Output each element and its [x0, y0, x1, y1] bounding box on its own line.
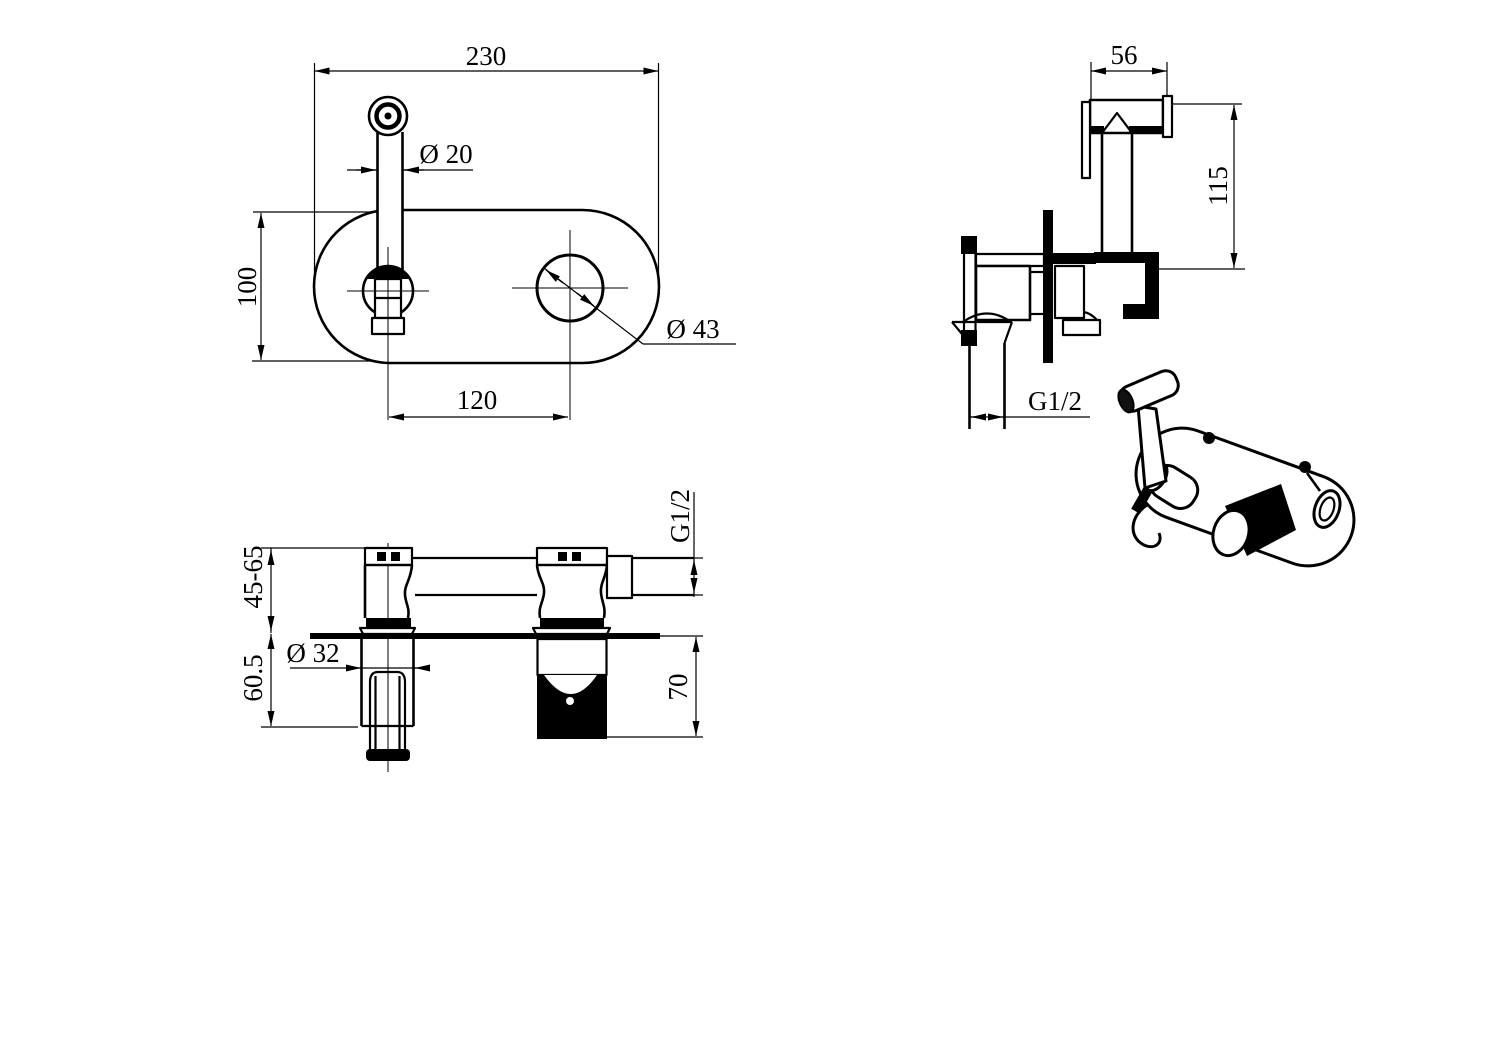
drawing-canvas: 230 100 Ø 43 Ø 20 — [0, 0, 1497, 1058]
technical-drawing-sheet: 230 100 Ø 43 Ø 20 — [0, 0, 1497, 1058]
spray-head-center — [385, 113, 392, 120]
dim-wall-depth-range-label: 45-65 — [238, 546, 268, 609]
dim-sprayer-height-label: 115 — [1203, 166, 1233, 206]
dim-plate-width-label: 230 — [466, 41, 507, 71]
dim-outlet-thread-label: G1/2 — [1028, 386, 1082, 416]
dim-head-width-label: 56 — [1111, 40, 1138, 70]
mounting-screw-3d — [1203, 432, 1215, 444]
valve-block — [976, 266, 1030, 320]
dim-valve-depth-label: 70 — [663, 674, 693, 701]
dim-sleeve-diameter-label: Ø 32 — [286, 638, 339, 668]
spray-head-cap — [1163, 96, 1172, 137]
cartridge-screw-hole — [566, 697, 574, 705]
dim-behind-wall-depth-label: 60.5 — [238, 654, 268, 701]
dim-inlet-thread-label: G1/2 — [665, 489, 695, 543]
hose-port-nut — [1063, 320, 1100, 335]
dim-spray-diameter-label: Ø 20 — [419, 139, 472, 169]
holder-cap — [365, 548, 412, 565]
dim-mixer-hole-label: Ø 43 — [666, 314, 719, 344]
dim-plate-height-label: 100 — [232, 267, 262, 308]
sleeve-end-nut — [366, 749, 410, 761]
mounting-screw-3d — [1299, 461, 1311, 473]
inlet-port — [607, 556, 632, 598]
spray-face-plate — [1082, 102, 1090, 178]
supply-pipe — [976, 254, 1044, 266]
dim-hole-spacing-label: 120 — [457, 385, 498, 415]
wall-plate-edge — [1043, 210, 1053, 363]
